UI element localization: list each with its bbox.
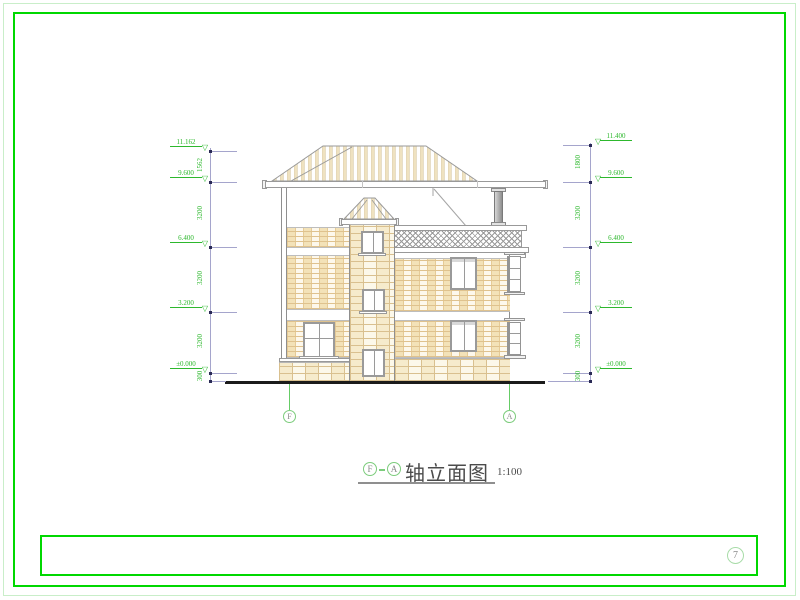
elevation-marker: ±0.000 ▽ [594, 360, 634, 374]
window [303, 322, 335, 358]
bay-window-ledge [504, 318, 525, 321]
brick-band-third-floor [287, 227, 349, 248]
bay-window-ledge [504, 252, 525, 255]
axis-line-f [289, 384, 290, 410]
stone-plinth [395, 358, 510, 381]
dimension-label: 1562 [196, 145, 204, 185]
bay-rail [510, 279, 520, 280]
elevation-marker: 3.200 ▽ [594, 299, 634, 313]
dimension-label: 3200 [574, 258, 582, 298]
tower-window [362, 289, 385, 312]
dimension-label: 300 [196, 356, 204, 396]
title-axis-dash [379, 469, 385, 471]
bay-rail [510, 343, 520, 344]
rear-roof-slope-line [434, 189, 466, 226]
extension-line [210, 381, 226, 382]
bay-rail [510, 268, 520, 269]
extension-line [563, 312, 590, 313]
window [450, 257, 477, 290]
elevation-marker: 9.600 ▽ [170, 169, 210, 183]
elevation-triangle-icon: ▽ [595, 174, 601, 183]
title-axis-bubble-f: F [363, 462, 377, 476]
title-axis-bubble-a: A [387, 462, 401, 476]
title-underline [358, 482, 495, 484]
dimension-tick [589, 311, 592, 314]
brick-band-second-floor [287, 255, 349, 310]
main-eave-band [265, 181, 546, 188]
axis-bubble-f: F [283, 410, 296, 423]
elevation-marker: 11.162 ▽ [170, 138, 210, 152]
bay-window [507, 322, 521, 355]
dimension-tick [209, 380, 212, 383]
elevation-marker: 6.400 ▽ [170, 234, 210, 248]
elevation-marker: ±0.000 ▽ [170, 360, 210, 374]
elevation-marker: 9.600 ▽ [594, 169, 634, 183]
extension-line [210, 373, 237, 374]
bay-window-ledge [504, 292, 525, 295]
dimension-label: 1800 [574, 142, 582, 182]
elevation-marker: 11.400 ▽ [594, 132, 634, 146]
elevation-marker: 6.400 ▽ [594, 234, 634, 248]
dimension-tick [589, 181, 592, 184]
dimension-label: 300 [574, 356, 582, 396]
window-mullion [464, 259, 465, 288]
tower-window [362, 349, 385, 377]
window [450, 320, 477, 352]
terrace-column [494, 191, 503, 223]
dimension-tick [589, 144, 592, 147]
window-mullion [319, 324, 320, 356]
eave-joint [362, 181, 363, 188]
extension-line [563, 182, 590, 183]
window-mullion [373, 233, 374, 252]
dimension-line [590, 143, 591, 383]
bay-window-ledge [504, 355, 526, 359]
drawing-scale: 1:100 [497, 466, 522, 478]
dimension-tick [589, 380, 592, 383]
stone-plinth [279, 362, 349, 381]
dimension-label: 3200 [196, 258, 204, 298]
dimension-label: 3200 [196, 321, 204, 361]
axis-line-a [509, 384, 510, 410]
extension-line [210, 182, 237, 183]
elevation-triangle-icon: ▽ [595, 304, 601, 313]
dimension-label: 3200 [196, 193, 204, 233]
window-mullion [374, 351, 375, 375]
dimension-label: 3200 [574, 193, 582, 233]
bay-window [507, 256, 521, 292]
main-hip-roof [272, 146, 477, 181]
tower-hip-roof [344, 198, 394, 219]
window-sill [358, 253, 386, 256]
bay-rail [510, 333, 520, 334]
axis-bubble-a: A [503, 410, 516, 423]
tower-window [361, 231, 384, 254]
window-sill [359, 311, 387, 314]
elevation-triangle-icon: ▽ [595, 137, 601, 146]
balusters [394, 231, 522, 247]
ground-line [225, 381, 545, 384]
window-mullion [374, 291, 375, 310]
window-mullion [464, 322, 465, 350]
elevation-triangle-icon: ▽ [202, 239, 208, 248]
extension-line [548, 381, 590, 382]
extension-line [210, 151, 237, 152]
extension-line [210, 247, 237, 248]
elevation-triangle-icon: ▽ [202, 304, 208, 313]
window-transom [305, 338, 333, 339]
elevation-triangle-icon: ▽ [595, 239, 601, 248]
extension-line [210, 312, 237, 313]
dimension-tick [589, 372, 592, 375]
eave-joint [477, 181, 478, 188]
elevation-triangle-icon: ▽ [595, 365, 601, 374]
dimension-tick [589, 246, 592, 249]
extension-line [563, 247, 590, 248]
elevation-marker: 3.200 ▽ [170, 299, 210, 313]
dimension-label: 3200 [574, 321, 582, 361]
drawing-sheet: 7 [0, 0, 800, 600]
